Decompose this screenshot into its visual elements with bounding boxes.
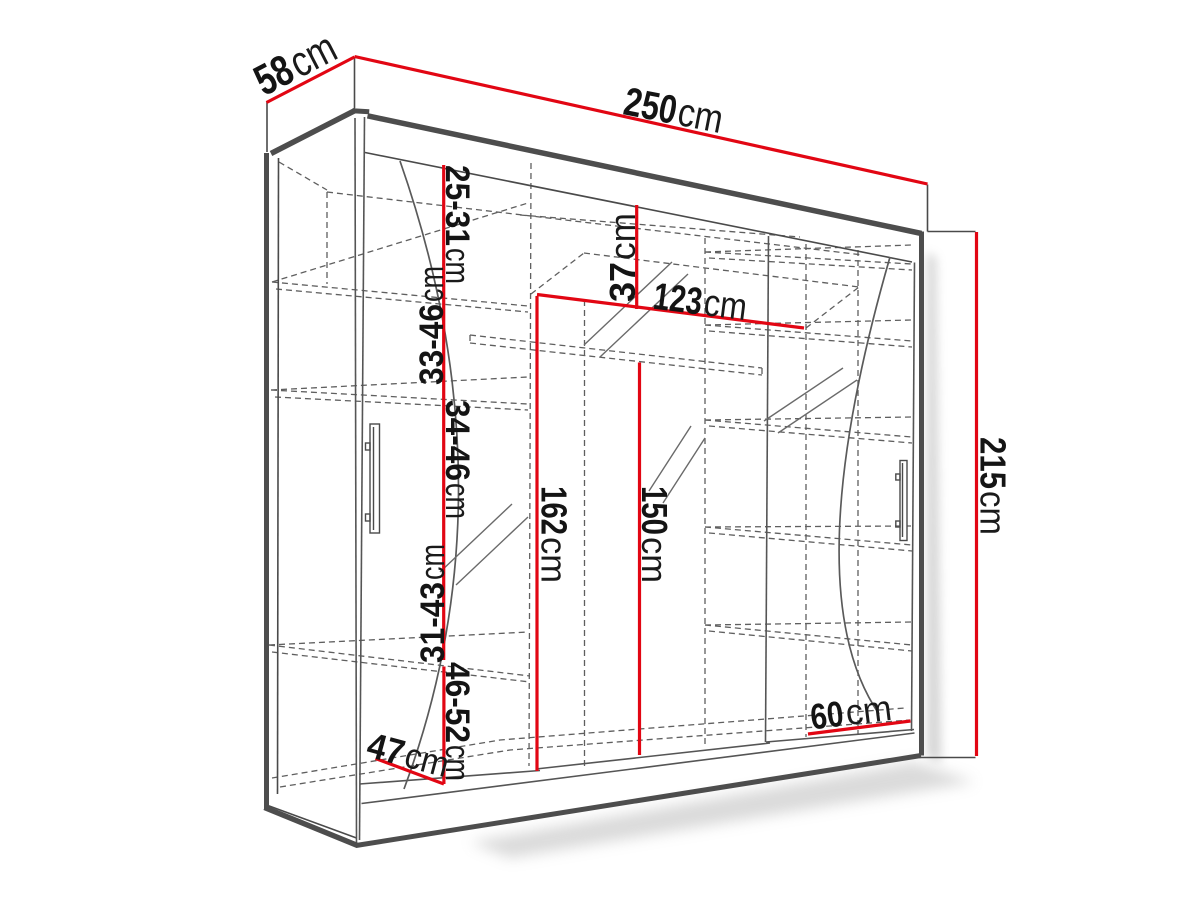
svg-text:46-52: 46-52 — [438, 662, 476, 743]
svg-text:cm: cm — [413, 266, 451, 302]
svg-text:250: 250 — [620, 80, 680, 133]
svg-text:cm: cm — [674, 90, 727, 142]
svg-text:150: 150 — [634, 486, 675, 535]
svg-text:cm: cm — [534, 537, 575, 583]
svg-text:cm: cm — [843, 687, 894, 733]
svg-text:60: 60 — [808, 693, 846, 738]
svg-text:34-46: 34-46 — [438, 400, 476, 481]
svg-text:162: 162 — [534, 486, 575, 535]
svg-text:cm: cm — [414, 544, 452, 580]
svg-text:cm: cm — [602, 213, 643, 260]
svg-text:cm: cm — [701, 282, 749, 329]
svg-text:25-31: 25-31 — [438, 165, 476, 246]
svg-text:cm: cm — [438, 483, 476, 519]
svg-text:31-43: 31-43 — [414, 582, 452, 663]
svg-text:33-46: 33-46 — [413, 304, 451, 385]
svg-text:cm: cm — [634, 537, 675, 583]
svg-text:37: 37 — [602, 262, 643, 302]
svg-text:cm: cm — [973, 491, 1014, 535]
svg-text:123: 123 — [651, 276, 705, 324]
svg-text:215: 215 — [973, 437, 1014, 489]
